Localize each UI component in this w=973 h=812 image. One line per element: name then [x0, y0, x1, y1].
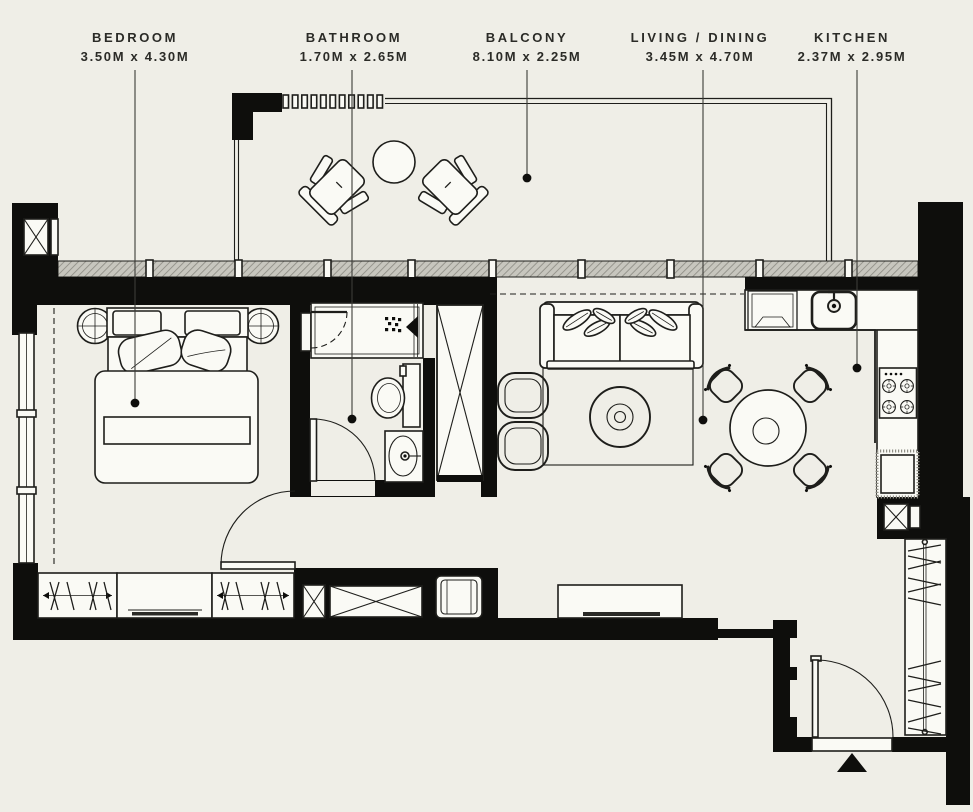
balcony-chair-right	[410, 147, 495, 232]
leader-dot-bedroom	[131, 399, 140, 408]
bathroom-sink	[385, 431, 423, 482]
utility-shaft	[437, 305, 483, 482]
dining-table	[730, 390, 806, 466]
dining-set	[702, 362, 835, 495]
armchair-top	[498, 373, 548, 418]
sofa	[540, 302, 703, 369]
bedroom-label: BEDROOM	[81, 28, 190, 47]
bed	[95, 308, 258, 483]
balcony-chair-left	[292, 147, 377, 232]
room-label-bathroom: BATHROOM 1.70M x 2.65M	[300, 28, 409, 66]
toilet	[372, 364, 421, 427]
shower-wall-niche	[301, 313, 311, 351]
room-label-bedroom: BEDROOM 3.50M x 4.30M	[81, 28, 190, 66]
living-area	[498, 302, 703, 618]
living-dining-dimensions: 3.45M x 4.70M	[631, 47, 770, 66]
room-label-balcony: BALCONY 8.10M x 2.25M	[473, 28, 582, 66]
living-dining-label: LIVING / DINING	[631, 28, 770, 47]
entry-closet	[905, 539, 946, 735]
bedroom-wardrobe	[38, 573, 294, 618]
shower	[311, 303, 423, 358]
bedroom-area	[38, 308, 295, 618]
bathroom-door-opening	[311, 481, 375, 496]
kitchen-dimensions: 2.37M x 2.95M	[798, 47, 907, 66]
bedroom-door	[221, 491, 295, 569]
bathroom-area	[310, 303, 423, 482]
floor-plan-page: BEDROOM 3.50M x 4.30M BATHROOM 1.70M x 2…	[0, 0, 973, 812]
stove	[880, 368, 917, 418]
balcony-label: BALCONY	[473, 28, 582, 47]
kitchen-shaft	[884, 504, 920, 530]
entrance-door	[811, 656, 893, 737]
balcony-railing-balusters	[283, 95, 383, 108]
bathroom-label: BATHROOM	[300, 28, 409, 47]
balcony-left-wall	[232, 93, 282, 140]
leader-dot-balcony	[523, 174, 532, 183]
balcony-table	[373, 141, 415, 183]
bathroom-dimensions: 1.70M x 2.65M	[300, 47, 409, 66]
entrance-threshold	[812, 738, 892, 751]
balcony-area	[232, 93, 832, 261]
balcony-dimensions: 8.10M x 2.25M	[473, 47, 582, 66]
bedroom-window	[17, 333, 36, 563]
floor-plan-drawing	[0, 0, 973, 812]
bathroom-door	[310, 419, 375, 481]
kitchen-label: KITCHEN	[798, 28, 907, 47]
room-label-living-dining: LIVING / DINING 3.45M x 4.70M	[631, 28, 770, 66]
bedroom-dimensions: 3.50M x 4.30M	[81, 47, 190, 66]
washing-machine	[436, 576, 482, 618]
tv-console	[558, 585, 682, 618]
leader-dot-bathroom	[348, 415, 357, 424]
leader-dot-kitchen	[853, 364, 862, 373]
window-band	[58, 260, 918, 278]
kitchen-cabinet	[877, 451, 918, 497]
room-label-kitchen: KITCHEN 2.37M x 2.95M	[798, 28, 907, 66]
leader-dot-living	[699, 416, 708, 425]
coffee-table	[590, 387, 650, 447]
armchair-bottom	[498, 422, 548, 470]
entrance-marker	[837, 753, 867, 772]
